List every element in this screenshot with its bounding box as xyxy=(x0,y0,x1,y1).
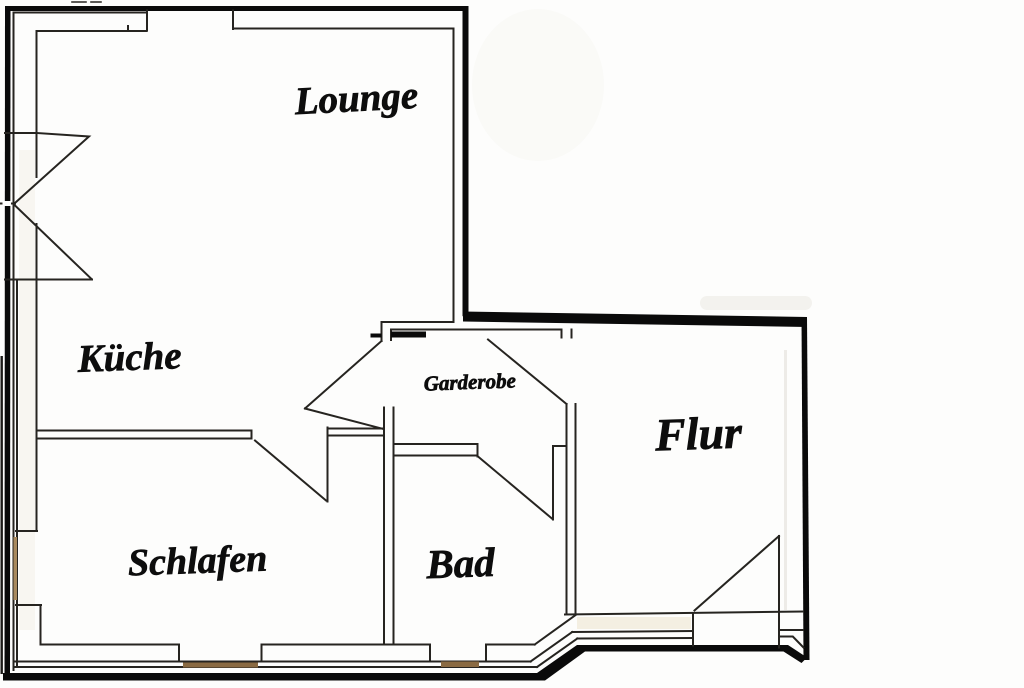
svg-text:Küche: Küche xyxy=(76,334,182,381)
svg-text:Flur: Flur xyxy=(653,406,744,460)
svg-text:Lounge: Lounge xyxy=(293,74,420,123)
svg-text:Garderobe: Garderobe xyxy=(423,368,516,395)
svg-text:Schlafen: Schlafen xyxy=(127,538,268,585)
svg-text:Bad: Bad xyxy=(425,539,496,587)
